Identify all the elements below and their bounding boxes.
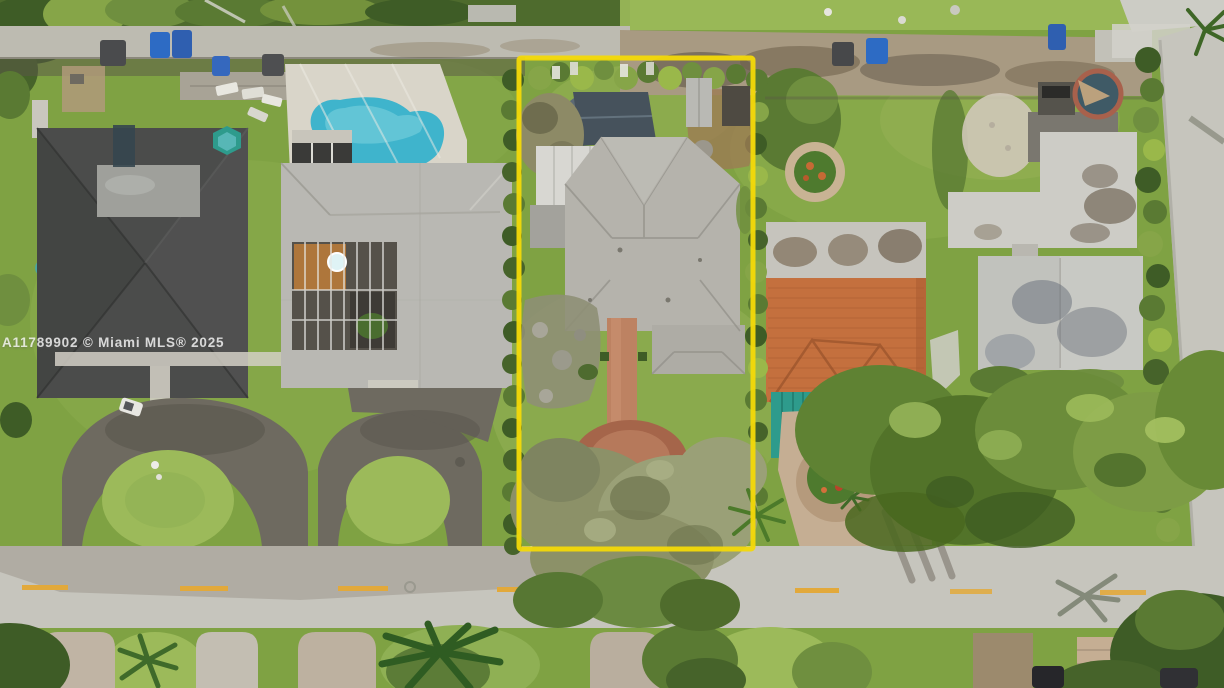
parked-car	[1032, 666, 1064, 688]
dirt-patch	[973, 633, 1033, 688]
garage-roof	[530, 205, 567, 248]
front-tree-canopy	[510, 437, 767, 631]
front-walkway	[55, 352, 300, 366]
aerial-photo: A11789902 © Miami MLS® 2025	[0, 0, 1224, 688]
dark-shed	[722, 86, 750, 126]
patio-frame	[292, 130, 352, 143]
shed-top	[468, 5, 516, 22]
gravel-patch	[962, 93, 1038, 177]
driveway-apron	[196, 632, 258, 688]
stone-pad	[62, 66, 105, 112]
lot2-house	[281, 163, 512, 394]
driveway-apron	[298, 632, 376, 688]
parked-car	[1160, 668, 1198, 688]
front-wing-roof	[652, 325, 745, 374]
courtyard-atrium	[292, 242, 397, 350]
aerial-scene	[0, 0, 1224, 688]
tree-shadow	[1012, 280, 1072, 324]
yard-ornament	[151, 461, 159, 469]
